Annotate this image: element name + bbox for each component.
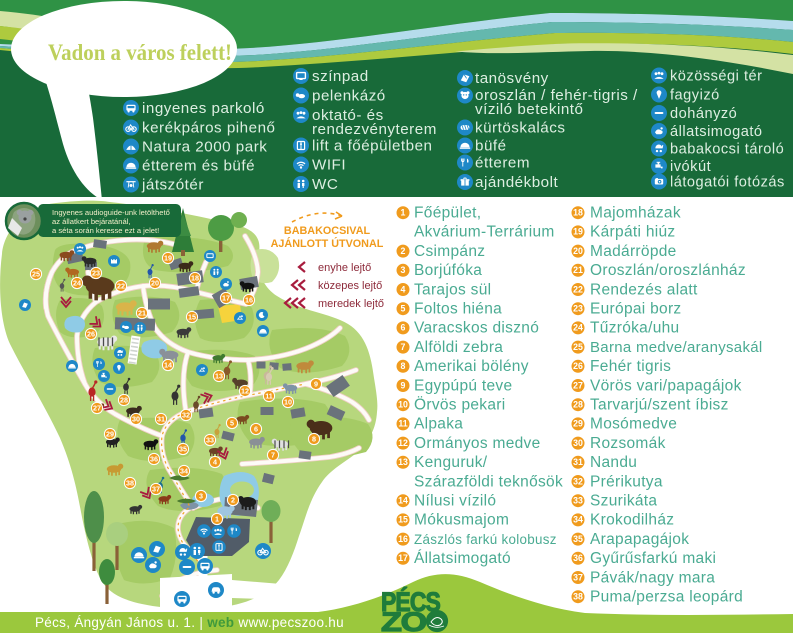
- svg-text:étterem és büfé: étterem és büfé: [142, 158, 255, 175]
- svg-text:Vadon a város felett!: Vadon a város felett!: [48, 40, 232, 65]
- svg-text:Nandu: Nandu: [590, 454, 637, 471]
- svg-text:közösségi tér: közösségi tér: [670, 69, 762, 85]
- svg-text:9: 9: [401, 380, 406, 390]
- svg-text:Főépület,: Főépület,: [414, 205, 481, 222]
- svg-text:24: 24: [73, 279, 81, 288]
- svg-text:21: 21: [573, 265, 583, 275]
- svg-text:15: 15: [398, 515, 408, 525]
- svg-text:Rozsomák: Rozsomák: [590, 435, 666, 452]
- svg-text:Tarvarjú/szent íbisz: Tarvarjú/szent íbisz: [590, 397, 729, 414]
- svg-text:14: 14: [164, 361, 172, 370]
- svg-text:22: 22: [117, 282, 125, 291]
- svg-text:tanösvény: tanösvény: [475, 70, 549, 87]
- svg-text:BABAKOCSIVAL: BABAKOCSIVAL: [284, 225, 371, 237]
- svg-text:Örvös pekari: Örvös pekari: [414, 396, 505, 414]
- svg-text:Mosómedve: Mosómedve: [590, 416, 677, 433]
- svg-text:a séta során keresse ezt a jel: a séta során keresse ezt a jelet!: [52, 226, 159, 235]
- svg-text:Akvárium-Terrárium: Akvárium-Terrárium: [414, 224, 555, 241]
- svg-text:7: 7: [401, 342, 406, 352]
- svg-text:34: 34: [573, 515, 583, 525]
- svg-text:2: 2: [401, 246, 406, 256]
- svg-text:fagyizó: fagyizó: [670, 88, 720, 104]
- svg-text:étterem: étterem: [475, 155, 530, 172]
- svg-text:Pécs, Ángyán János u. 1. | w: Pécs, Ángyán János u. 1. | web www.pecsz…: [35, 615, 344, 630]
- svg-text:4: 4: [401, 284, 406, 294]
- svg-text:13: 13: [398, 457, 408, 467]
- svg-text:Csimpánz: Csimpánz: [414, 243, 485, 260]
- svg-text:Szárazföldi teknősök: Szárazföldi teknősök: [414, 473, 563, 490]
- svg-text:33: 33: [573, 496, 583, 506]
- svg-text:11: 11: [398, 419, 407, 429]
- svg-text:16: 16: [245, 296, 253, 305]
- svg-text:35: 35: [179, 445, 187, 454]
- svg-text:Tarajos sül: Tarajos sül: [414, 281, 491, 298]
- svg-text:18: 18: [573, 208, 583, 218]
- svg-text:Pávák/nagy mara: Pávák/nagy mara: [590, 569, 715, 586]
- svg-text:WIFI: WIFI: [312, 157, 346, 174]
- svg-text:15: 15: [188, 313, 196, 322]
- svg-text:10: 10: [284, 398, 292, 407]
- svg-text:7: 7: [271, 451, 275, 460]
- svg-text:29: 29: [106, 430, 114, 439]
- svg-text:17: 17: [398, 553, 408, 563]
- svg-text:22: 22: [573, 284, 583, 294]
- svg-text:enyhe lejtő: enyhe lejtő: [318, 262, 371, 274]
- svg-text:26: 26: [87, 330, 95, 339]
- svg-text:színpad: színpad: [312, 68, 369, 85]
- svg-text:lift a főépületben: lift a főépületben: [312, 138, 432, 155]
- svg-text:Ormányos medve: Ormányos medve: [414, 435, 541, 452]
- svg-text:babakocsi tároló: babakocsi tároló: [670, 142, 784, 158]
- svg-text:Kárpáti hiúz: Kárpáti hiúz: [590, 224, 675, 241]
- svg-text:Alföldi zebra: Alföldi zebra: [414, 339, 503, 356]
- svg-text:Tűzróka/uhu: Tűzróka/uhu: [590, 320, 679, 337]
- svg-text:19: 19: [573, 227, 583, 237]
- svg-text:Amerikai bölény: Amerikai bölény: [414, 358, 529, 375]
- svg-text:1: 1: [401, 208, 406, 218]
- svg-text:14: 14: [398, 496, 408, 506]
- svg-text:Krokodilház: Krokodilház: [590, 512, 674, 529]
- svg-text:37: 37: [152, 485, 160, 494]
- svg-text:37: 37: [573, 572, 583, 582]
- svg-text:11: 11: [265, 392, 273, 401]
- svg-text:Kenguruk/: Kenguruk/: [414, 454, 488, 471]
- svg-text:8: 8: [312, 435, 316, 444]
- svg-text:28: 28: [573, 400, 583, 410]
- svg-text:29: 29: [573, 419, 583, 429]
- svg-text:5: 5: [401, 304, 406, 314]
- svg-text:ingyenes parkoló: ingyenes parkoló: [142, 100, 265, 117]
- svg-text:9: 9: [314, 380, 318, 389]
- svg-text:Alpaka: Alpaka: [414, 416, 463, 433]
- svg-text:ajándékbolt: ajándékbolt: [475, 174, 558, 191]
- svg-text:31: 31: [573, 457, 583, 467]
- svg-text:24: 24: [573, 323, 583, 333]
- svg-text:látogatói fotózás: látogatói fotózás: [670, 175, 785, 191]
- svg-text:Foltos hiéna: Foltos hiéna: [414, 301, 502, 318]
- svg-text:27: 27: [573, 380, 583, 390]
- svg-text:Európai borz: Európai borz: [590, 301, 681, 318]
- svg-text:Mókusmajom: Mókusmajom: [414, 512, 509, 529]
- svg-text:26: 26: [573, 361, 583, 371]
- svg-text:34: 34: [180, 467, 188, 476]
- svg-text:Madárröpde: Madárröpde: [590, 243, 677, 260]
- svg-text:30: 30: [132, 415, 140, 424]
- svg-text:Rendezés alatt: Rendezés alatt: [590, 281, 698, 298]
- svg-text:16: 16: [398, 534, 408, 544]
- svg-text:rendezvényterem: rendezvényterem: [312, 121, 437, 138]
- svg-text:Gyűrűsfarkú maki: Gyűrűsfarkú maki: [590, 550, 716, 567]
- svg-text:AJÁNLOTT ÚTVONAL: AJÁNLOTT ÚTVONAL: [271, 237, 384, 250]
- svg-text:Natura 2000 park: Natura 2000 park: [142, 139, 267, 156]
- svg-text:17: 17: [222, 294, 230, 303]
- svg-text:31: 31: [157, 415, 165, 424]
- svg-text:2: 2: [231, 496, 235, 505]
- svg-text:3: 3: [401, 265, 406, 275]
- svg-text:25: 25: [32, 270, 40, 279]
- svg-text:30: 30: [573, 438, 583, 448]
- svg-text:32: 32: [182, 411, 190, 420]
- svg-text:Egypúpú teve: Egypúpú teve: [414, 377, 512, 394]
- svg-text:ivókút: ivókút: [670, 159, 711, 175]
- svg-text:Oroszlán/oroszlánház: Oroszlán/oroszlánház: [590, 262, 746, 279]
- svg-text:23: 23: [573, 304, 583, 314]
- svg-text:18: 18: [191, 274, 199, 283]
- svg-text:12: 12: [398, 438, 408, 448]
- svg-text:Puma/perzsa leopárd: Puma/perzsa leopárd: [590, 589, 743, 606]
- svg-text:13: 13: [215, 372, 223, 381]
- svg-text:21: 21: [138, 309, 146, 318]
- svg-text:Borjúfóka: Borjúfóka: [414, 262, 482, 279]
- svg-text:víziló betekintő: víziló betekintő: [475, 101, 583, 118]
- svg-text:12: 12: [241, 387, 249, 396]
- svg-text:38: 38: [573, 592, 583, 602]
- svg-text:25: 25: [573, 342, 583, 352]
- svg-text:Barna medve/aranysakál: Barna medve/aranysakál: [590, 339, 763, 356]
- svg-text:kerékpáros pihenő: kerékpáros pihenő: [142, 120, 275, 137]
- svg-text:1: 1: [215, 515, 219, 524]
- svg-text:Zászlós farkú kolobusz: Zászlós farkú kolobusz: [414, 532, 557, 547]
- svg-text:36: 36: [573, 553, 583, 563]
- svg-text:23: 23: [92, 269, 100, 278]
- svg-text:36: 36: [150, 455, 158, 464]
- svg-text:Majomházak: Majomházak: [590, 205, 681, 222]
- svg-text:19: 19: [164, 254, 172, 263]
- svg-text:8: 8: [401, 361, 406, 371]
- svg-text:Nílusi víziló: Nílusi víziló: [414, 493, 496, 510]
- svg-text:35: 35: [573, 534, 583, 544]
- svg-text:6: 6: [254, 425, 258, 434]
- svg-text:pelenkázó: pelenkázó: [312, 88, 386, 105]
- svg-text:Arapapagájok: Arapapagájok: [590, 531, 689, 548]
- svg-text:Vörös vari/papagájok: Vörös vari/papagájok: [590, 377, 742, 394]
- svg-text:3: 3: [199, 492, 203, 501]
- svg-text:Fehér tigris: Fehér tigris: [590, 358, 671, 375]
- svg-text:32: 32: [573, 476, 583, 486]
- svg-text:Varacskos disznó: Varacskos disznó: [414, 320, 539, 337]
- svg-text:33: 33: [206, 436, 214, 445]
- svg-text:közepes lejtő: közepes lejtő: [318, 280, 382, 292]
- svg-text:6: 6: [401, 323, 406, 333]
- svg-text:játszótér: játszótér: [141, 177, 204, 194]
- svg-text:Prérikutya: Prérikutya: [590, 473, 663, 490]
- svg-text:28: 28: [120, 396, 128, 405]
- svg-text:Állatsimogató: Állatsimogató: [414, 550, 511, 567]
- svg-text:ZO: ZO: [381, 607, 426, 633]
- svg-text:büfé: büfé: [475, 138, 507, 155]
- svg-text:kürtöskalács: kürtöskalács: [475, 120, 565, 137]
- svg-text:WC: WC: [312, 176, 338, 193]
- svg-text:az állatkert bejáratánál,: az állatkert bejáratánál,: [52, 217, 131, 226]
- svg-text:20: 20: [151, 279, 159, 288]
- svg-text:dohányzó: dohányzó: [670, 106, 737, 122]
- svg-text:4: 4: [213, 458, 217, 467]
- svg-text:20: 20: [573, 246, 583, 256]
- svg-text:10: 10: [398, 400, 408, 410]
- svg-text:Ingyenes audioguide-unk letölt: Ingyenes audioguide-unk letölthető: [52, 208, 170, 217]
- svg-text:Szurikáta: Szurikáta: [590, 493, 657, 510]
- svg-text:állatsimogató: állatsimogató: [670, 124, 763, 140]
- svg-text:38: 38: [126, 479, 134, 488]
- svg-text:5: 5: [230, 419, 234, 428]
- svg-text:27: 27: [93, 404, 101, 413]
- svg-text:meredek lejtő: meredek lejtő: [318, 298, 384, 310]
